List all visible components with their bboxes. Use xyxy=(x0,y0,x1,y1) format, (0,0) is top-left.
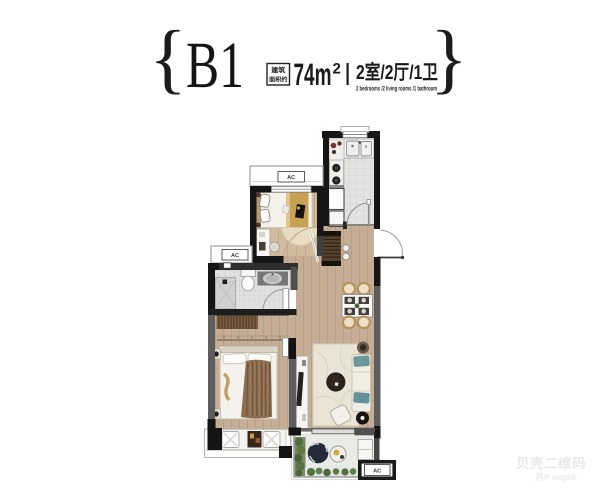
svg-text:2 bedrooms /2 living rooms /1: 2 bedrooms /2 living rooms /1 bathroom xyxy=(356,86,437,93)
svg-text:AC: AC xyxy=(373,468,381,474)
svg-text:月P neglik: 月P neglik xyxy=(535,472,577,482)
svg-text:B1: B1 xyxy=(186,29,244,102)
svg-text:AC: AC xyxy=(287,175,295,181)
svg-text:建筑: 建筑 xyxy=(271,66,285,75)
svg-text:2: 2 xyxy=(333,61,341,78)
svg-text:AC: AC xyxy=(231,253,239,259)
svg-text:{: { xyxy=(149,14,186,101)
svg-text:贝壳二维码: 贝壳二维码 xyxy=(516,456,586,471)
svg-text:2室/2厅/1卫: 2室/2厅/1卫 xyxy=(356,61,438,84)
svg-text:}: } xyxy=(430,14,467,101)
svg-text:面积约: 面积约 xyxy=(269,76,288,84)
svg-text:74m: 74m xyxy=(294,57,332,92)
